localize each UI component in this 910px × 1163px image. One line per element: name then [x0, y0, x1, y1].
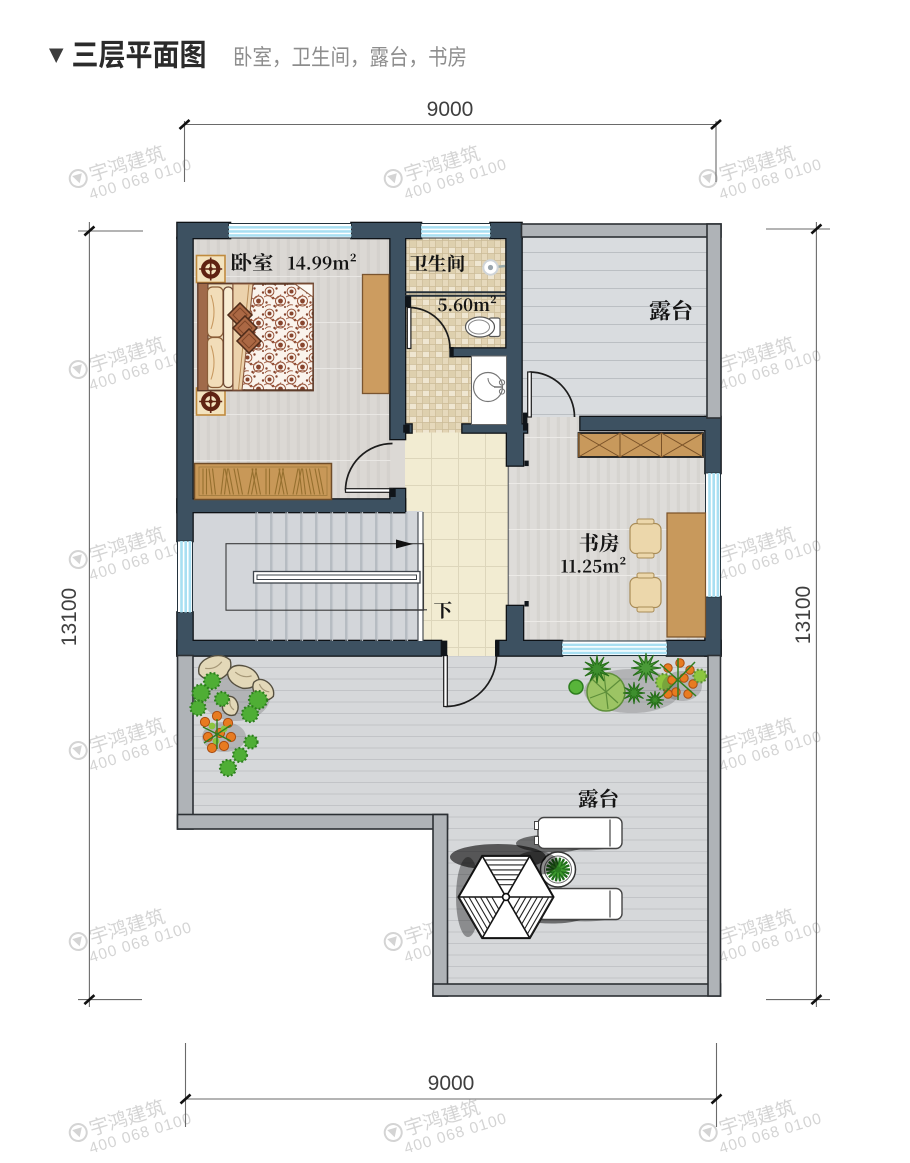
svg-text:13100: 13100	[58, 588, 81, 646]
svg-text:9000: 9000	[427, 98, 474, 121]
svg-text:9000: 9000	[428, 1072, 475, 1095]
svg-text:13100: 13100	[792, 586, 815, 644]
